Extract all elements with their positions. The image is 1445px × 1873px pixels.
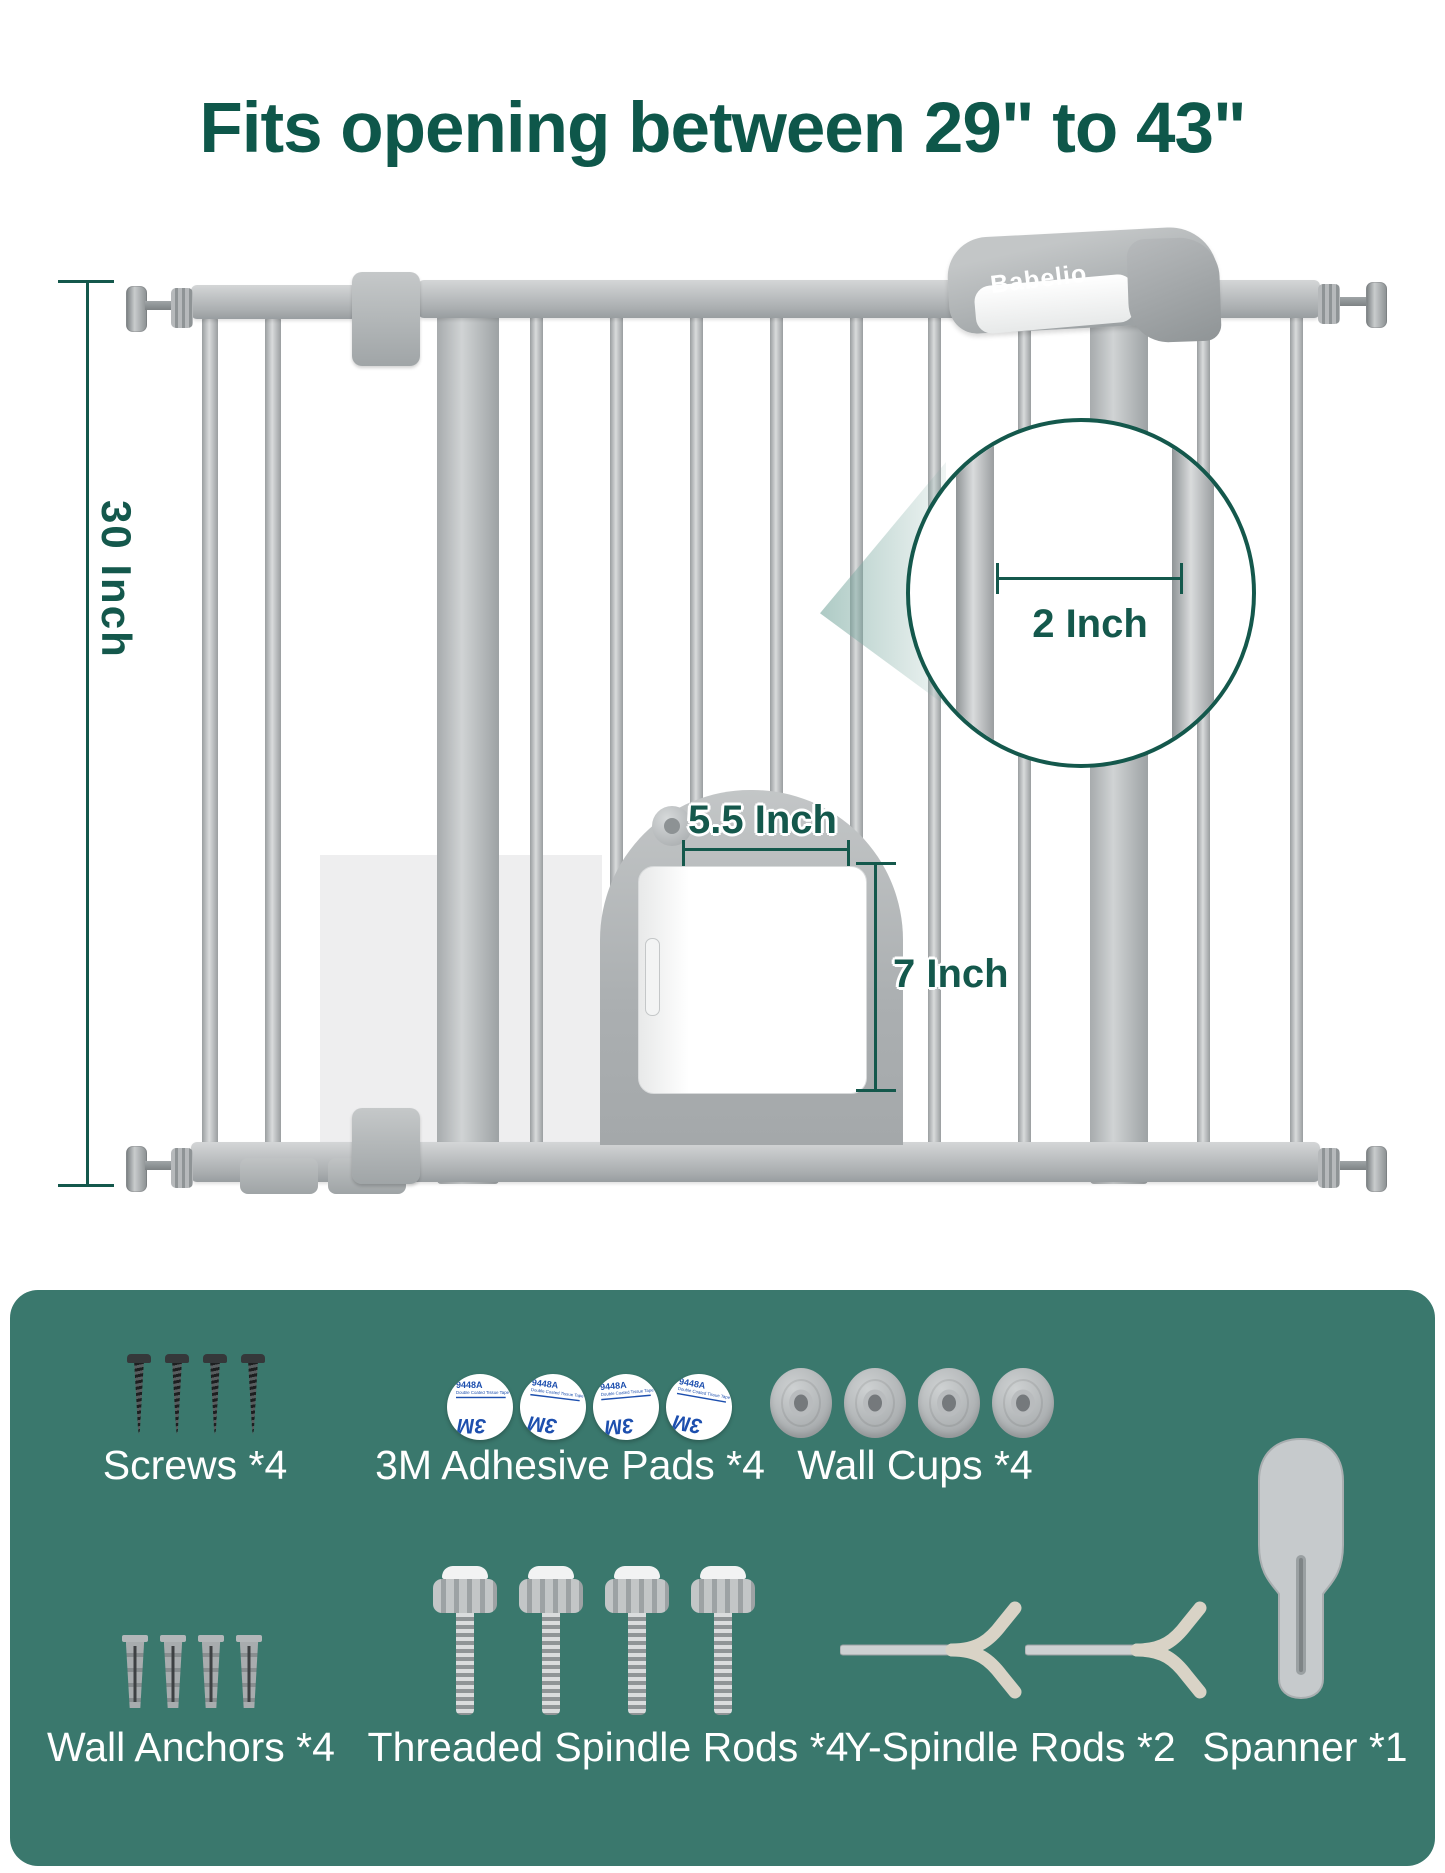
pressure-mount-knob <box>126 1146 147 1192</box>
pressure-mount-knob <box>1366 282 1387 328</box>
pet-door-hinge-pin <box>664 818 680 834</box>
adhesive-pad-icon: 9448A Double Coated Tissue Tape 3M <box>447 1374 513 1440</box>
wall-cup-icon <box>992 1368 1054 1438</box>
wall-cup-icon <box>918 1368 980 1438</box>
rod-knob <box>433 1579 497 1613</box>
rod-cap <box>700 1566 746 1579</box>
wall-cup-hole <box>942 1395 956 1412</box>
wall-anchors-label: Wall Anchors *4 <box>47 1724 335 1771</box>
bar-gap-line <box>998 577 1182 580</box>
magnified-bar <box>1172 422 1214 764</box>
pet-door-height-line <box>874 864 877 1092</box>
screw-head <box>165 1354 189 1363</box>
anchor-collar <box>236 1635 262 1642</box>
wall-cups-group <box>770 1368 1054 1438</box>
anchor-collar <box>198 1635 224 1642</box>
pet-door-hinge <box>652 806 692 846</box>
spindle-rods-label: Threaded Spindle Rods *4 <box>368 1724 849 1771</box>
pad-print: 9448A Double Coated Tissue Tape <box>600 1379 655 1403</box>
pet-door-height-tick <box>856 862 896 865</box>
spanner-icon <box>1255 1437 1347 1703</box>
gate-latch-cover <box>1126 236 1222 343</box>
rod-knob <box>519 1579 583 1613</box>
pressure-mount-nut <box>1318 1148 1340 1188</box>
rod-cap <box>528 1566 574 1579</box>
rod-shaft <box>542 1613 560 1715</box>
spanner-label: Spanner *1 <box>1202 1724 1407 1771</box>
adhesive-pads-group: 9448A Double Coated Tissue Tape 3M 9448A… <box>447 1374 732 1440</box>
page-title: Fits opening between 29" to 43" <box>0 88 1445 169</box>
gate-foot <box>240 1158 318 1194</box>
pressure-mount-nut <box>1318 284 1340 324</box>
screw-icon <box>127 1354 151 1438</box>
y-spindle-rod-icon <box>1025 1598 1215 1702</box>
bar-gap-tick <box>1180 563 1183 594</box>
screw-shaft <box>133 1363 145 1435</box>
screw-icon <box>241 1354 265 1438</box>
gate-top-extension-bar <box>191 285 357 319</box>
pet-door-width-label: 5.5 Inch <box>688 798 837 843</box>
wall-cups-label: Wall Cups *4 <box>797 1442 1032 1489</box>
pressure-mount-nut <box>171 1148 193 1188</box>
pet-door-width-line <box>682 848 850 851</box>
screws-label: Screws *4 <box>103 1442 288 1489</box>
pad-brand-text: 3M <box>527 1412 559 1436</box>
pad-model-text: 9448A <box>456 1381 509 1391</box>
adhesive-pad-icon: 9448A Double Coated Tissue Tape 3M <box>590 1371 662 1443</box>
screw-icon <box>165 1354 189 1438</box>
wall-anchor-icon <box>236 1635 262 1711</box>
gate-top-clamp <box>352 272 420 366</box>
pet-door-handle-slot <box>645 938 660 1016</box>
pad-print: 9448A Double Coated Tissue Tape <box>456 1381 509 1401</box>
wall-cup-icon <box>770 1368 832 1438</box>
pressure-mount-shaft <box>145 1161 171 1170</box>
y-spindle-rods-label: Y-Spindle Rods *2 <box>844 1724 1175 1771</box>
wall-cup-hole <box>868 1395 882 1412</box>
anchor-body <box>202 1642 221 1708</box>
screw-head <box>127 1354 151 1363</box>
screw-shaft <box>209 1363 221 1435</box>
pad-brand-text: 3M <box>457 1415 486 1436</box>
pressure-mount-knob <box>126 286 147 332</box>
wall-anchor-icon <box>122 1635 148 1711</box>
pressure-mount-nut <box>171 288 193 328</box>
wall-anchor-icon <box>198 1635 224 1711</box>
pet-door-panel <box>638 866 867 1094</box>
anchor-collar <box>122 1635 148 1642</box>
screws-group <box>127 1354 265 1438</box>
anchor-body <box>164 1642 183 1708</box>
screw-head <box>241 1354 265 1363</box>
height-dimension-tick-bottom <box>58 1184 114 1187</box>
pressure-mount-shaft <box>1340 297 1366 306</box>
wall-cup-icon <box>844 1368 906 1438</box>
gate-bar <box>1290 310 1303 1148</box>
anchor-slot <box>248 1646 251 1702</box>
magnified-bar <box>956 422 994 764</box>
magnifier-circle: 2 Inch <box>906 418 1256 768</box>
pet-door-width-tick <box>847 840 850 866</box>
wall-anchor-icon <box>160 1635 186 1711</box>
anchor-body <box>126 1642 145 1708</box>
rod-knob <box>691 1579 755 1613</box>
adhesive-pad-icon: 9448A Double Coated Tissue Tape 3M <box>661 1369 737 1445</box>
pet-door-height-tick <box>856 1089 896 1092</box>
accessories-panel: 9448A Double Coated Tissue Tape 3M 9448A… <box>10 1290 1435 1866</box>
y-spindle-rod-icon <box>840 1598 1030 1702</box>
threaded-spindle-rod-icon <box>433 1566 497 1718</box>
pad-print: 9448A Double Coated Tissue Tape <box>530 1378 585 1404</box>
adhesive-pad-icon: 9448A Double Coated Tissue Tape 3M <box>516 1370 590 1444</box>
screw-icon <box>203 1354 227 1438</box>
product-infographic: Fits opening between 29" to 43" 30 Inch <box>0 0 1445 1873</box>
gate-bar <box>928 310 941 1148</box>
pad-brand-text: 3M <box>604 1414 635 1437</box>
gate-bar <box>530 310 543 1148</box>
anchor-slot <box>172 1646 175 1702</box>
pad-brand-text: 3M <box>671 1411 703 1437</box>
rod-shaft <box>714 1613 732 1715</box>
pressure-mount-shaft <box>145 301 171 310</box>
bar-gap-tick <box>996 563 999 594</box>
rod-cap <box>614 1566 660 1579</box>
adhesive-pads-label: 3M Adhesive Pads *4 <box>375 1442 765 1489</box>
rod-shaft <box>456 1613 474 1715</box>
bar-gap-label: 2 Inch <box>970 602 1210 647</box>
anchor-collar <box>160 1635 186 1642</box>
gate-bar <box>265 317 281 1147</box>
spindle-rods-group <box>433 1566 755 1718</box>
height-dimension-line <box>86 281 89 1186</box>
gate-bottom-clamp <box>352 1108 420 1184</box>
pet-door-height-label: 7 Inch <box>893 952 1009 997</box>
pressure-mount-knob <box>1366 1146 1387 1192</box>
screw-shaft <box>171 1363 183 1435</box>
threaded-spindle-rod-icon <box>519 1566 583 1718</box>
anchor-slot <box>210 1646 213 1702</box>
rod-knob <box>605 1579 669 1613</box>
pressure-mount-shaft <box>1340 1161 1366 1170</box>
wall-anchors-group <box>122 1635 262 1711</box>
pet-door-width-tick <box>682 840 685 866</box>
threaded-spindle-rod-icon <box>691 1566 755 1718</box>
gate-hinge-post <box>437 282 499 1184</box>
gate-bar <box>202 317 218 1147</box>
pad-print: 9448A Double Coated Tissue Tape <box>676 1377 732 1406</box>
anchor-body <box>240 1642 259 1708</box>
threaded-spindle-rod-icon <box>605 1566 669 1718</box>
anchor-slot <box>134 1646 137 1702</box>
wall-cup-hole <box>794 1395 808 1412</box>
height-dimension-tick-top <box>58 280 114 283</box>
rod-shaft <box>628 1613 646 1715</box>
gate-height-label: 30 Inch <box>92 500 140 659</box>
screw-shaft <box>247 1363 259 1435</box>
screw-head <box>203 1354 227 1363</box>
wall-cup-hole <box>1016 1395 1030 1412</box>
pad-desc-text: Double Coated Tissue Tape <box>456 1391 506 1398</box>
rod-cap <box>442 1566 488 1579</box>
